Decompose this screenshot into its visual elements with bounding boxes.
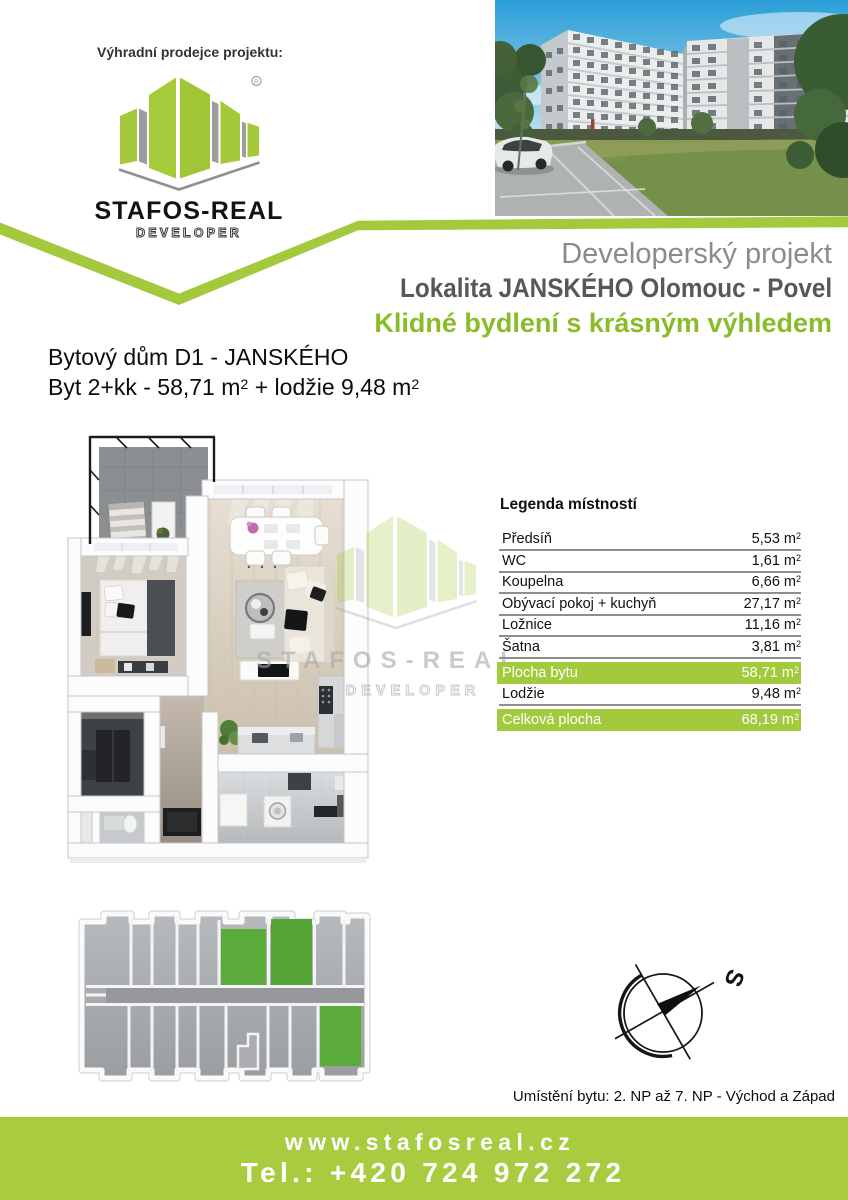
svg-text:R: R	[254, 79, 259, 86]
svg-text:STAFOS-REAL: STAFOS-REAL	[256, 647, 524, 674]
svg-text:DEVELOPER: DEVELOPER	[346, 683, 480, 699]
